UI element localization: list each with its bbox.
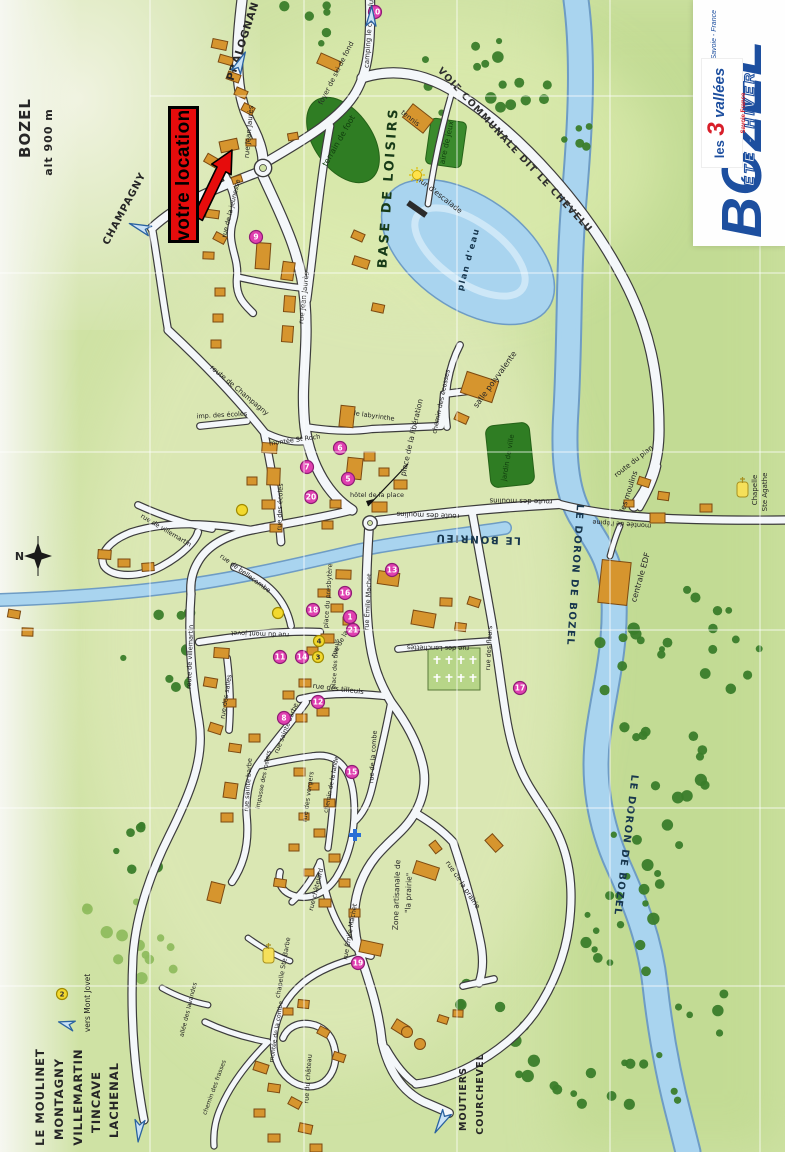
tree — [659, 646, 665, 652]
tree — [577, 1099, 587, 1109]
tree — [708, 645, 717, 654]
tree — [726, 684, 737, 695]
tree — [689, 731, 699, 741]
tree — [120, 655, 126, 661]
building — [700, 504, 712, 512]
bozel-logo-region: Savoie - France — [711, 10, 718, 59]
tree — [690, 593, 700, 603]
map-label: COURCHEVEL — [475, 1053, 486, 1134]
poi-marker-number: 8 — [281, 714, 286, 723]
poi-marker-number: 9 — [253, 233, 258, 242]
building — [267, 468, 281, 485]
building — [213, 314, 223, 322]
tree — [473, 63, 481, 71]
tree — [732, 636, 740, 644]
tree — [639, 884, 650, 895]
map-label: LE MOULINET — [33, 1048, 47, 1146]
map-label: TINCAVE — [89, 1071, 103, 1133]
map-label: hôtel de la place — [350, 491, 404, 499]
building — [203, 252, 214, 259]
building — [440, 598, 452, 606]
les3vallees-suffix: vallées — [711, 68, 728, 118]
poi-marker-number: 7 — [304, 463, 309, 472]
location-flag-text: votre location — [173, 109, 195, 241]
les3vallees-sub: Savoie France — [729, 59, 759, 167]
building — [364, 452, 375, 461]
les3vallees-number: 3 — [703, 122, 730, 135]
map-label: N — [15, 550, 25, 563]
tree — [593, 927, 600, 934]
building — [7, 609, 20, 619]
building — [453, 1010, 463, 1017]
tree — [651, 781, 660, 790]
tree — [322, 28, 331, 37]
map-label: alt 900 m — [42, 108, 55, 176]
map-label: vers Mont Jovet — [83, 974, 92, 1032]
tree — [708, 624, 717, 633]
chapel-icon — [737, 482, 748, 497]
tree — [101, 926, 113, 938]
tree — [136, 972, 148, 984]
tree — [713, 606, 722, 615]
tree — [496, 38, 502, 44]
tree — [686, 1012, 693, 1019]
poi-marker-yellow — [237, 505, 248, 516]
tree — [157, 934, 164, 941]
tree — [171, 682, 181, 692]
poi-marker-number: 12 — [313, 698, 323, 707]
tree — [561, 136, 568, 143]
map-label: rue des Lanchettes — [406, 643, 469, 652]
tree — [619, 633, 628, 642]
building — [339, 879, 350, 887]
building — [314, 829, 325, 837]
tree — [641, 727, 651, 737]
building — [254, 1109, 265, 1117]
tree — [641, 966, 651, 976]
tree — [471, 42, 480, 51]
map-label: VILLEMARTIN — [71, 1048, 85, 1145]
tree — [165, 675, 173, 683]
poi-marker-number: 4 — [317, 638, 322, 646]
poi-marker-number: 20 — [306, 493, 316, 502]
tree — [611, 832, 617, 838]
roundabout-center — [368, 521, 373, 526]
tree — [619, 722, 629, 732]
tree — [632, 835, 642, 845]
poi-marker-number: 2 — [60, 991, 65, 999]
poi-marker-yellow — [273, 608, 284, 619]
tree — [725, 607, 732, 614]
cemetery — [428, 648, 480, 690]
tree — [642, 859, 654, 871]
tree — [305, 11, 314, 20]
building — [229, 743, 242, 753]
tree — [624, 1099, 635, 1110]
building — [331, 604, 343, 612]
tree — [422, 56, 429, 63]
tree — [528, 1055, 540, 1067]
tree — [481, 60, 489, 68]
ground-wash-leftband — [0, 0, 80, 1152]
tree — [492, 51, 504, 63]
tree — [656, 1052, 662, 1058]
building — [211, 340, 221, 348]
poi-marker-number: 1 — [347, 613, 352, 622]
tree — [654, 870, 661, 877]
les3vallees-logo: les 3 vallées Savoie France — [701, 58, 743, 168]
tree — [632, 733, 640, 741]
building — [262, 500, 275, 509]
tree — [116, 930, 128, 942]
tree — [595, 637, 606, 648]
tree — [586, 1068, 596, 1078]
tree — [617, 661, 627, 671]
poi-marker-number: 15 — [347, 768, 357, 777]
tree — [585, 912, 591, 918]
building — [283, 691, 294, 699]
tree — [700, 780, 709, 789]
poi-marker-number: 11 — [275, 653, 285, 662]
tree — [635, 940, 645, 950]
tree — [575, 139, 584, 148]
tree — [672, 792, 684, 804]
building — [22, 628, 33, 636]
building — [322, 521, 333, 529]
tree — [586, 123, 593, 130]
tree — [700, 668, 711, 679]
tree — [167, 943, 175, 951]
tree — [113, 954, 123, 964]
building — [268, 1134, 280, 1142]
tree — [591, 946, 597, 952]
tree — [142, 951, 150, 959]
tree — [716, 1029, 723, 1036]
building — [287, 132, 298, 141]
building-tank — [415, 1039, 426, 1050]
tree — [675, 1004, 682, 1011]
tree — [617, 921, 624, 928]
building — [247, 477, 257, 485]
tree — [639, 1059, 648, 1068]
chapel-icon — [263, 948, 274, 963]
poi-marker-number: 19 — [353, 959, 363, 968]
tree — [514, 78, 524, 88]
tree — [600, 685, 610, 695]
tree — [550, 1081, 559, 1090]
tree — [522, 1070, 534, 1082]
tree — [138, 822, 146, 830]
tree — [153, 610, 164, 621]
map-label: BOZEL — [16, 98, 34, 158]
tree — [580, 937, 591, 948]
map-canvas: BOZELalt 900 mPRALOGNANCHAMPAGNYLE MOULI… — [0, 0, 785, 1152]
location-flag: votre location — [168, 106, 199, 243]
tree — [628, 622, 640, 634]
building — [598, 560, 631, 606]
tree — [593, 953, 603, 963]
building — [214, 647, 230, 658]
building — [283, 296, 295, 313]
building — [274, 878, 287, 888]
tree — [642, 900, 648, 906]
building — [379, 468, 389, 476]
poi-marker-number: 3 — [316, 654, 321, 662]
building — [289, 844, 299, 851]
tree — [318, 40, 324, 46]
building — [329, 854, 340, 862]
tree — [126, 828, 135, 837]
poi-marker-number: 14 — [297, 653, 307, 662]
map-label: Ste Agathe — [761, 473, 769, 512]
building — [317, 708, 329, 716]
building — [650, 513, 665, 523]
building — [255, 243, 271, 270]
resort-logo: BOZEL ÉTÉ - HIVER Savoie - France les 3 … — [693, 0, 785, 246]
building — [304, 869, 314, 876]
tree — [683, 586, 691, 594]
tree — [607, 1091, 617, 1101]
tree — [495, 102, 506, 113]
building — [98, 550, 112, 560]
building — [142, 563, 155, 572]
poi-marker-number: 5 — [345, 475, 350, 484]
map-label: Chapelle — [751, 475, 759, 506]
building — [296, 714, 307, 722]
les3vallees-prefix: les — [712, 140, 727, 158]
building — [372, 502, 387, 512]
sun-icon — [413, 171, 422, 180]
tree — [712, 1005, 723, 1016]
building — [281, 261, 295, 280]
tree — [662, 819, 673, 830]
map-label: MONTAGNY — [52, 1058, 66, 1140]
tree — [719, 989, 728, 998]
tree — [495, 1002, 505, 1012]
building — [283, 1008, 293, 1015]
tree — [169, 965, 178, 974]
building — [221, 813, 233, 822]
building — [268, 1083, 281, 1093]
map-label: route des moulins — [489, 496, 552, 505]
tree — [756, 645, 763, 652]
tree — [743, 670, 752, 679]
building — [281, 326, 293, 343]
building — [223, 782, 238, 799]
tree — [696, 753, 704, 761]
tree — [177, 611, 186, 620]
poi-marker-number: 17 — [515, 684, 525, 693]
tree — [113, 848, 119, 854]
building — [118, 559, 130, 567]
building — [203, 677, 217, 688]
tree — [570, 1090, 577, 1097]
tree — [621, 1059, 628, 1066]
building — [330, 500, 341, 508]
roundabout-center — [260, 165, 267, 172]
tree — [543, 80, 552, 89]
poi-marker-number: 16 — [340, 589, 350, 598]
building — [215, 288, 225, 296]
poi-marker-number: 18 — [308, 606, 318, 615]
building — [319, 899, 331, 907]
tree — [279, 1, 289, 11]
map-label: "la prairie" — [403, 873, 413, 914]
tree — [505, 99, 516, 110]
scanned-town-map: BOZELalt 900 mPRALOGNANCHAMPAGNYLE MOULI… — [0, 0, 785, 1152]
poi-marker-number: 13 — [387, 566, 397, 575]
building — [249, 734, 260, 742]
building — [310, 1144, 322, 1152]
tree — [576, 125, 583, 132]
tree — [671, 1088, 678, 1095]
building — [336, 570, 351, 580]
tree — [322, 1, 330, 9]
building — [657, 491, 669, 500]
map-label: MOUTIERS — [458, 1067, 469, 1131]
tree — [655, 879, 665, 889]
map-label: LACHENAL — [107, 1062, 121, 1138]
building — [299, 679, 311, 687]
tree — [485, 92, 497, 104]
tree — [82, 904, 93, 915]
building-tank — [402, 1027, 413, 1038]
tree — [499, 81, 507, 89]
map-label: rue des écoles — [275, 483, 285, 531]
tree — [647, 913, 659, 925]
tree — [663, 638, 673, 648]
tree — [515, 1071, 523, 1079]
tree — [675, 841, 683, 849]
tree — [674, 1097, 681, 1104]
tree — [127, 865, 136, 874]
building — [394, 480, 407, 489]
